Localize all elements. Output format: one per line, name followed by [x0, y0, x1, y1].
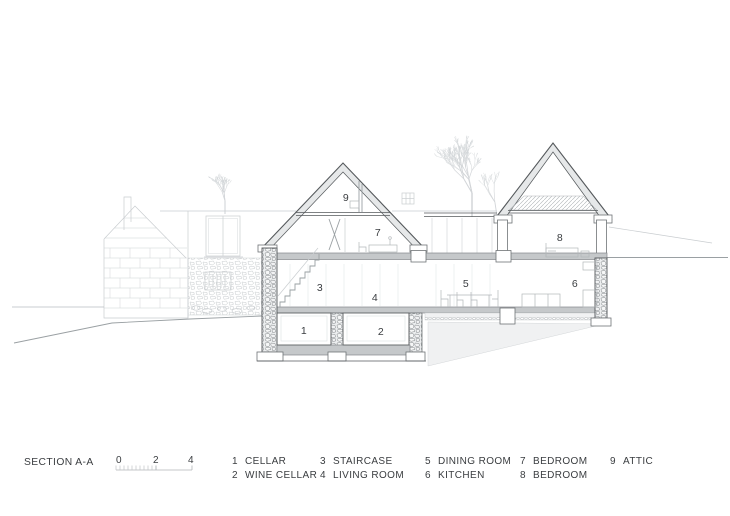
tree-branch	[220, 174, 221, 176]
tree-branch	[475, 156, 477, 160]
tree-branch	[498, 172, 499, 177]
legend-num-2: 2	[232, 470, 238, 481]
right-gable-section	[494, 143, 612, 258]
legend-name-4: LIVING ROOM	[333, 470, 404, 481]
link-glazing-mullions	[428, 218, 496, 256]
footing-cellar-mid	[328, 352, 346, 361]
sheet-title: SECTION A-A	[24, 457, 94, 468]
left-roof-outer	[259, 163, 427, 251]
room-label-living-room: 4	[372, 292, 378, 304]
tree-branch	[442, 158, 448, 162]
dining-set	[441, 290, 498, 307]
room-label-bedroom7: 7	[375, 227, 381, 239]
legend-num-9: 9	[610, 456, 616, 467]
stair-steps	[280, 254, 319, 307]
outbuilding-gable-roofline	[104, 206, 186, 258]
scale-label-2: 2	[153, 455, 159, 466]
slab-pier-right	[496, 251, 511, 263]
stone-coursing	[104, 218, 187, 308]
legend-name-9: ATTIC	[623, 456, 653, 467]
legend-num-8: 8	[520, 470, 526, 481]
distant-ridge-line	[609, 227, 712, 243]
scale-bar-ticks	[116, 466, 156, 471]
tree-branch	[219, 174, 220, 177]
glazed-link	[424, 213, 497, 256]
scale-label-4: 4	[188, 455, 194, 466]
left-roof-inner	[267, 172, 419, 252]
legend-num-1: 1	[232, 456, 238, 467]
legend-num-3: 3	[320, 456, 326, 467]
legend-name-1: CELLAR	[245, 456, 286, 467]
footing-right	[591, 318, 611, 326]
legend-name-2: WINE CELLAR	[245, 470, 317, 481]
room-label-attic: 9	[343, 192, 349, 204]
ground-pier	[500, 308, 515, 324]
room-label-wine-cellar: 2	[378, 326, 384, 338]
wine-cellar-shell	[343, 313, 409, 345]
tree-branch	[472, 165, 475, 171]
room-label-cellar: 1	[301, 325, 307, 337]
room-label-dining-room: 5	[463, 278, 469, 290]
footing-cellar-left	[257, 352, 283, 361]
legend-num-7: 7	[520, 456, 526, 467]
scale-bar: 0 2 4	[116, 455, 194, 470]
exterior-wall-left	[262, 248, 277, 352]
kitchen-units	[522, 262, 597, 307]
bedroom7-chair	[359, 242, 366, 252]
wine-cellar-lining	[347, 316, 405, 341]
roof-vent-box	[402, 193, 414, 204]
tree-branch	[495, 202, 497, 216]
tree-branch	[472, 153, 474, 155]
legend-name-8: BEDROOM	[533, 470, 587, 481]
attic-insulation-hatch	[509, 196, 597, 210]
left-roof-band	[259, 163, 427, 252]
legend: 1 CELLAR 2 WINE CELLAR 3 STAIRCASE 4 LIV…	[232, 456, 653, 481]
slab-pier-mid	[411, 251, 426, 263]
basement	[257, 313, 426, 361]
legend-name-6: KITCHEN	[438, 470, 485, 481]
tree-branch	[446, 149, 448, 151]
legend-num-4: 4	[320, 470, 326, 481]
tree-branch	[491, 179, 494, 184]
architectural-section-sheet: 1 2 3 4 5 6 7 8 9 SECTION A-A 0 2 4 1 CE…	[0, 0, 730, 516]
legend-name-3: STAIRCASE	[333, 456, 393, 467]
tree-branch	[479, 180, 481, 183]
title-block: SECTION A-A	[24, 457, 94, 468]
bedroom7-desk	[369, 245, 397, 252]
room-label-bedroom8: 8	[557, 232, 563, 244]
tree-branch	[495, 172, 496, 177]
earth-wedge-right	[428, 322, 604, 366]
scale-label-0: 0	[116, 455, 122, 466]
tree-branch	[220, 183, 221, 185]
bedroom7-lamp-shade	[389, 237, 392, 240]
legend-num-5: 5	[425, 456, 431, 467]
ground-slope-left	[14, 316, 262, 343]
legend-num-6: 6	[425, 470, 431, 481]
timber-cross-brace	[329, 218, 345, 252]
room-label-staircase: 3	[317, 282, 323, 294]
legend-name-7: BEDROOM	[533, 456, 587, 467]
bedroom-wall-right	[597, 220, 607, 258]
footing-cellar-right	[406, 352, 425, 361]
tree-branch	[481, 174, 483, 179]
tree-branch	[474, 156, 475, 160]
legend-name-5: DINING ROOM	[438, 456, 511, 467]
tree-branch	[223, 176, 224, 178]
bedroom-wall-left	[498, 220, 508, 254]
section-drawing: 1 2 3 4 5 6 7 8 9 SECTION A-A 0 2 4 1 CE…	[0, 0, 730, 516]
upper-floor-slab	[263, 253, 607, 260]
outbuilding-walls	[104, 239, 188, 318]
left-gable-section	[258, 163, 427, 252]
tree-branch	[230, 180, 231, 182]
tree-branch	[469, 171, 472, 179]
ground-floor-slab	[263, 307, 607, 313]
tree-branch	[458, 158, 459, 160]
cellar-right-wall	[409, 313, 422, 352]
attic-box	[350, 201, 359, 208]
left-outbuilding	[104, 197, 188, 318]
room-label-kitchen: 6	[572, 278, 578, 290]
